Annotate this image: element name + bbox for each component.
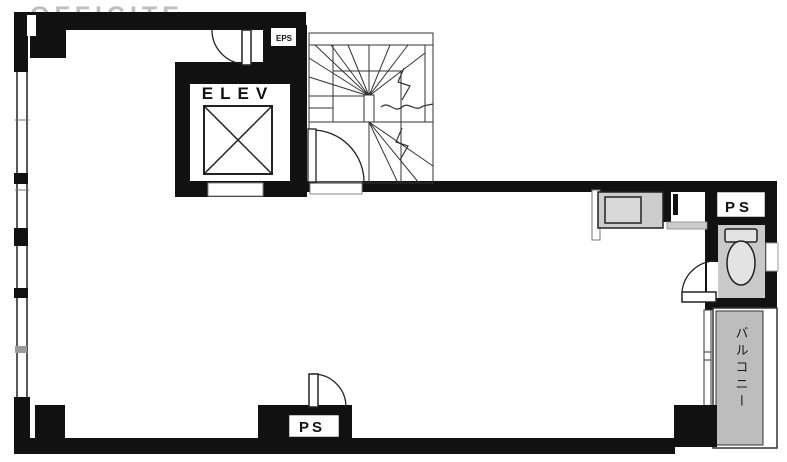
toilet-door-leaf: [682, 292, 716, 302]
bottom-door-leaf: [309, 374, 318, 407]
stair-door-leaf: [308, 129, 316, 182]
balcony-window-wall: [704, 310, 711, 406]
stair-newel-post: [364, 95, 374, 122]
wall-left-pier-3: [14, 288, 28, 298]
wall-bottomright-block: [674, 405, 717, 447]
stair-door-swing-arc: [312, 130, 364, 182]
topleft-notch: [27, 15, 36, 36]
ps-label-right: PS: [725, 199, 753, 216]
lobby-door-swing-arc: [212, 30, 246, 64]
staircase: [309, 33, 433, 183]
wall-topleft-column: [14, 30, 28, 72]
wall-left-gray-joint: [15, 346, 27, 353]
wall-left-pier-1: [14, 173, 28, 184]
eps-label: EPS: [276, 34, 293, 43]
lobby-door: [212, 30, 251, 65]
stair-break-zigzags: [396, 68, 410, 160]
walls: [14, 12, 777, 454]
wall-bottom: [14, 438, 675, 454]
lobby-door-leaf: [242, 30, 251, 65]
wall-counter-stub: [663, 188, 671, 222]
toilet-room: [718, 225, 765, 298]
wall-post-tick: [673, 194, 678, 215]
ps-label-bottom: PS: [299, 419, 325, 436]
toilet-tank: [725, 229, 757, 242]
elevator-door-opening: [208, 183, 263, 196]
kitchen-area: [592, 190, 707, 240]
counter-ledge: [667, 222, 707, 229]
toilet-window-opening: [766, 243, 778, 271]
stair-door: [308, 129, 364, 182]
kitchen-sink: [605, 197, 641, 223]
wall-left-pier-2: [14, 228, 28, 246]
wall-top: [14, 12, 306, 30]
floor-plan: OFFICITE: [0, 0, 787, 462]
balcony-label: バルコニー: [726, 326, 756, 442]
stair-door-opening: [310, 182, 362, 194]
elevator-label: ELEV: [202, 84, 274, 103]
bottom-entry-door: [309, 374, 346, 407]
toilet-bowl: [727, 241, 755, 285]
wall-bottom-column: [35, 405, 65, 438]
